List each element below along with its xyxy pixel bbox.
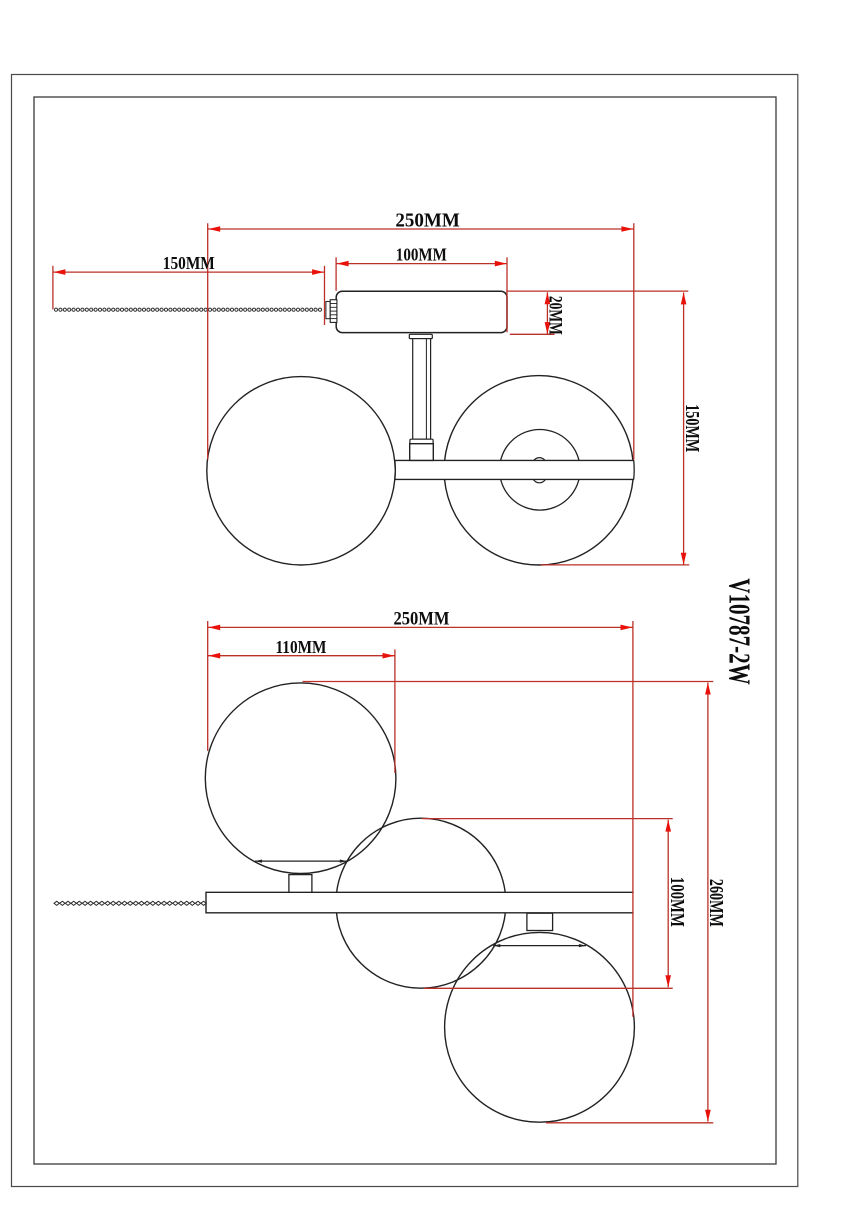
svg-text:110MM: 110MM xyxy=(276,637,327,657)
svg-text:150MM: 150MM xyxy=(681,404,703,452)
svg-text:260MM: 260MM xyxy=(705,879,727,927)
svg-text:150MM: 150MM xyxy=(163,253,215,273)
svg-text:100MM: 100MM xyxy=(396,245,447,265)
svg-text:V10787-2W: V10787-2W xyxy=(722,578,757,685)
svg-text:250MM: 250MM xyxy=(395,210,460,232)
svg-text:100MM: 100MM xyxy=(666,877,688,927)
svg-text:20MM: 20MM xyxy=(545,296,566,335)
svg-text:250MM: 250MM xyxy=(394,610,450,630)
